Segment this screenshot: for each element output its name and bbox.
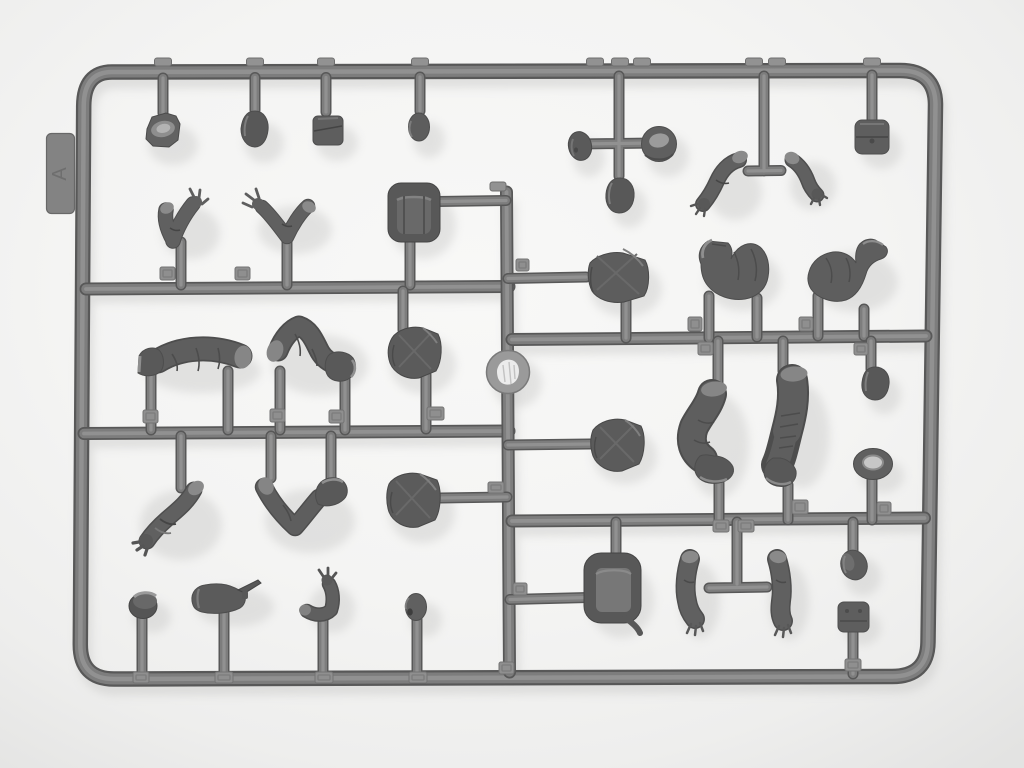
svg-text:A: A bbox=[49, 167, 71, 181]
